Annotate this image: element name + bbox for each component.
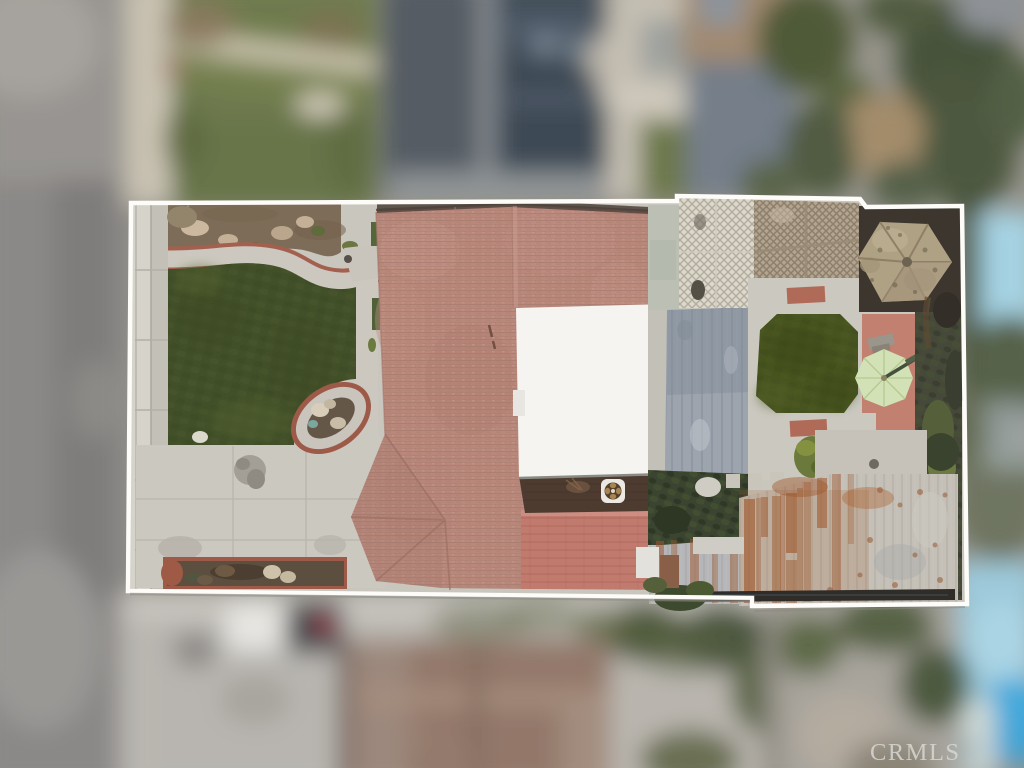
svg-text:CRMLS: CRMLS: [870, 739, 961, 766]
